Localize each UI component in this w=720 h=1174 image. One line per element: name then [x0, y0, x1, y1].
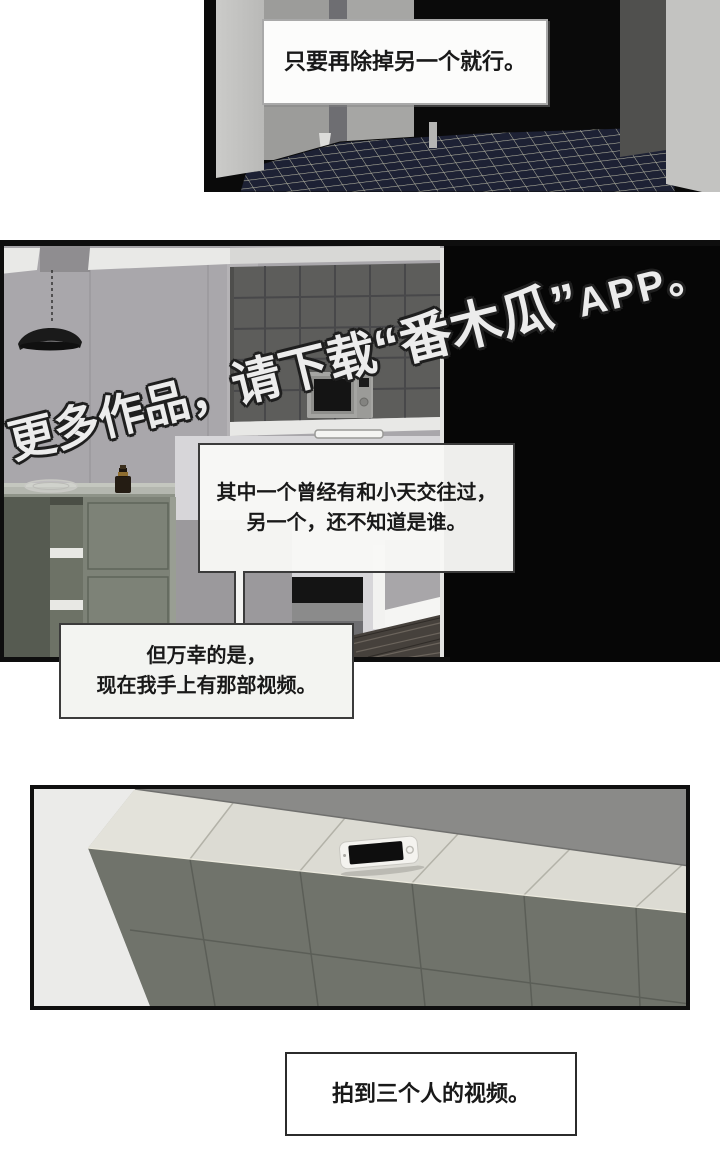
- oven-cavity: [292, 577, 363, 603]
- panel2-border-top: [0, 240, 720, 246]
- ceiling-soffit: [40, 246, 90, 272]
- phone-home-button: [406, 846, 413, 853]
- caption-line: 拍到三个人的视频。: [332, 1079, 530, 1109]
- microwave-knob: [360, 398, 368, 406]
- comic-panel-3: [30, 785, 690, 1010]
- caption-box-bottom: 拍到三个人的视频。: [285, 1052, 577, 1136]
- speech-line: 只要再除掉另一个就行。: [284, 46, 526, 78]
- island-side-panel: [0, 497, 50, 662]
- microwave: [307, 372, 373, 418]
- left-wall-column: [216, 0, 264, 178]
- island-shelf-board-1: [50, 548, 83, 558]
- speech-line: 另一个，还不知道是谁。: [247, 508, 467, 538]
- speech-box-top: 只要再除掉另一个就行。: [262, 19, 548, 105]
- comic-page: 只要再除掉另一个就行。 更多作品，请下载“番木瓜”APP。 其中一个曾经有和小天…: [0, 0, 720, 1174]
- lamp-rim: [20, 342, 80, 351]
- speech-box-middle-2: 但万幸的是， 现在我手上有那部视频。: [59, 623, 354, 719]
- speech-line: 现在我手上有那部视频。: [97, 671, 317, 701]
- panel3-scene: [34, 789, 686, 1006]
- panel2-border-left: [0, 240, 4, 662]
- furniture-leg: [429, 122, 437, 148]
- island-countertop-edge: [0, 494, 175, 497]
- speech-box-middle-1: 其中一个曾经有和小天交往过， 另一个，还不知道是谁。: [198, 443, 515, 573]
- oven-drawer: [292, 603, 363, 621]
- glass-bowl: [25, 480, 77, 492]
- speech-line: 但万幸的是，: [147, 641, 267, 671]
- bottle-cap: [120, 465, 126, 469]
- ceiling-left: [0, 248, 40, 274]
- speech-line: 其中一个曾经有和小天交往过，: [217, 478, 497, 508]
- microwave-display: [359, 378, 369, 387]
- island-shelf-shadow: [50, 497, 83, 505]
- speech-box-tail: [234, 571, 245, 625]
- right-light-column: [666, 0, 720, 192]
- microwave-window: [314, 379, 351, 411]
- bottle-gold-band: [118, 472, 128, 476]
- island-shelf-board-2: [50, 600, 83, 610]
- drawer-slot: [315, 430, 383, 438]
- right-dark-column: [620, 0, 666, 157]
